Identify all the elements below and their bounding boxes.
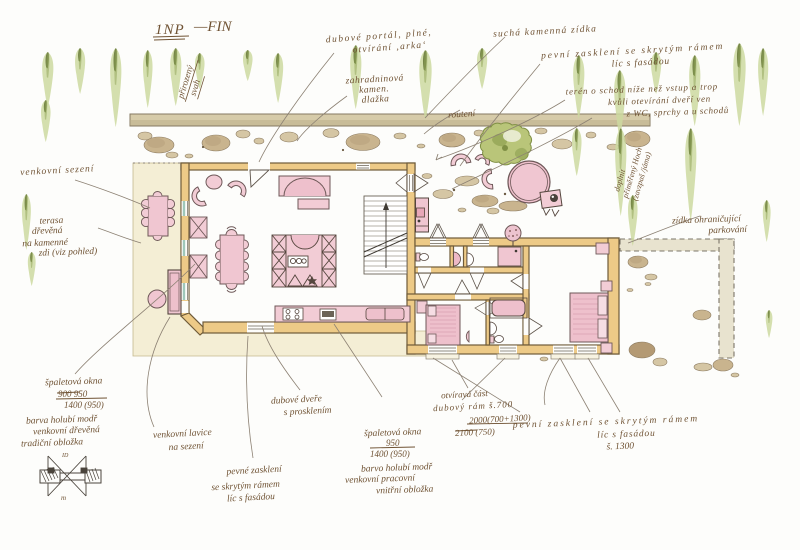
svg-text:m: m	[61, 494, 66, 502]
svg-text:vnitřní obložka: vnitřní obložka	[376, 485, 434, 497]
svg-text:líc s fasádou: líc s fasádou	[597, 428, 656, 441]
svg-text:na sezení: na sezení	[168, 441, 205, 453]
svg-text:ID: ID	[61, 453, 69, 459]
svg-text:1NP: 1NP	[155, 22, 185, 38]
svg-text:900 950: 900 950	[58, 389, 88, 399]
svg-text:dřevěná: dřevěná	[32, 226, 63, 237]
svg-text:1400 (950): 1400 (950)	[370, 449, 410, 459]
svg-text:routení: routení	[448, 109, 477, 121]
svg-text:dlažka: dlažka	[361, 94, 389, 105]
svg-text:špaletová okna: špaletová okna	[45, 376, 103, 388]
svg-text:parkování: parkování	[707, 225, 748, 236]
svg-text:š. 1300: š. 1300	[606, 442, 634, 453]
svg-text:1400 (950): 1400 (950)	[64, 400, 104, 410]
svg-text:zdi (viz pohled): zdi (viz pohled)	[37, 246, 97, 259]
svg-text:—FIN: —FIN	[193, 19, 232, 35]
svg-text:2100 (750): 2100 (750)	[455, 426, 495, 437]
svg-text:950: 950	[386, 438, 400, 448]
